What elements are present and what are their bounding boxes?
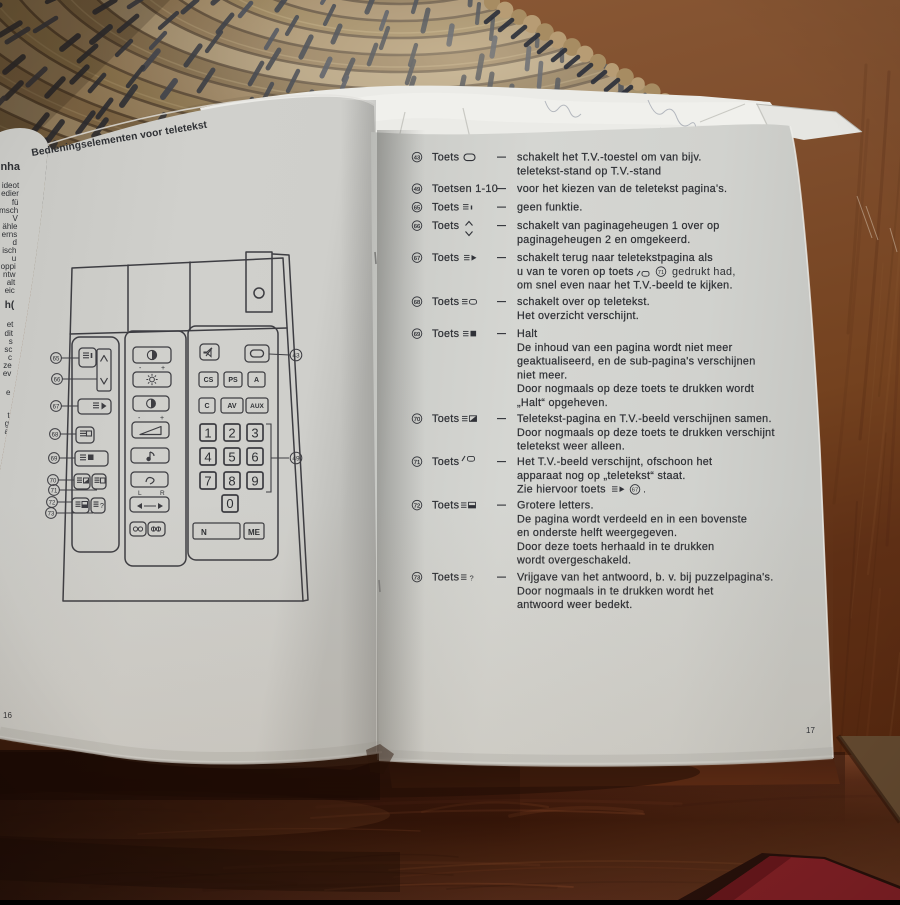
svg-text:17: 17 bbox=[806, 726, 815, 735]
